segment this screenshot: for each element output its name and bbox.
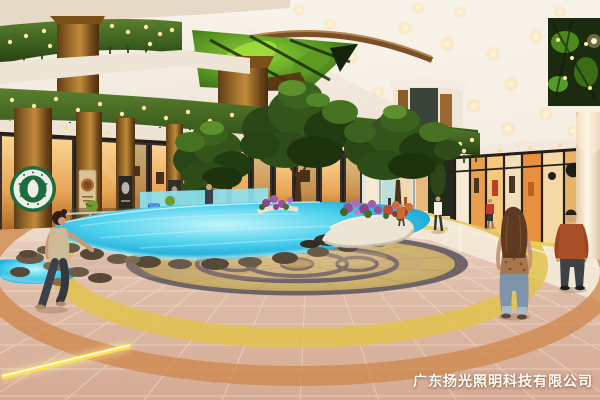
column-poster (119, 176, 133, 210)
coffee-shop-logo-icon (10, 166, 56, 212)
store-sign-disc (548, 172, 556, 180)
mall-atrium-rendering: 广东扬光照明科技有限公司 (0, 0, 600, 400)
scene-canvas (0, 0, 600, 400)
watermark-text: 广东扬光照明科技有限公司 (413, 371, 593, 391)
green-wall-panel (548, 18, 600, 106)
